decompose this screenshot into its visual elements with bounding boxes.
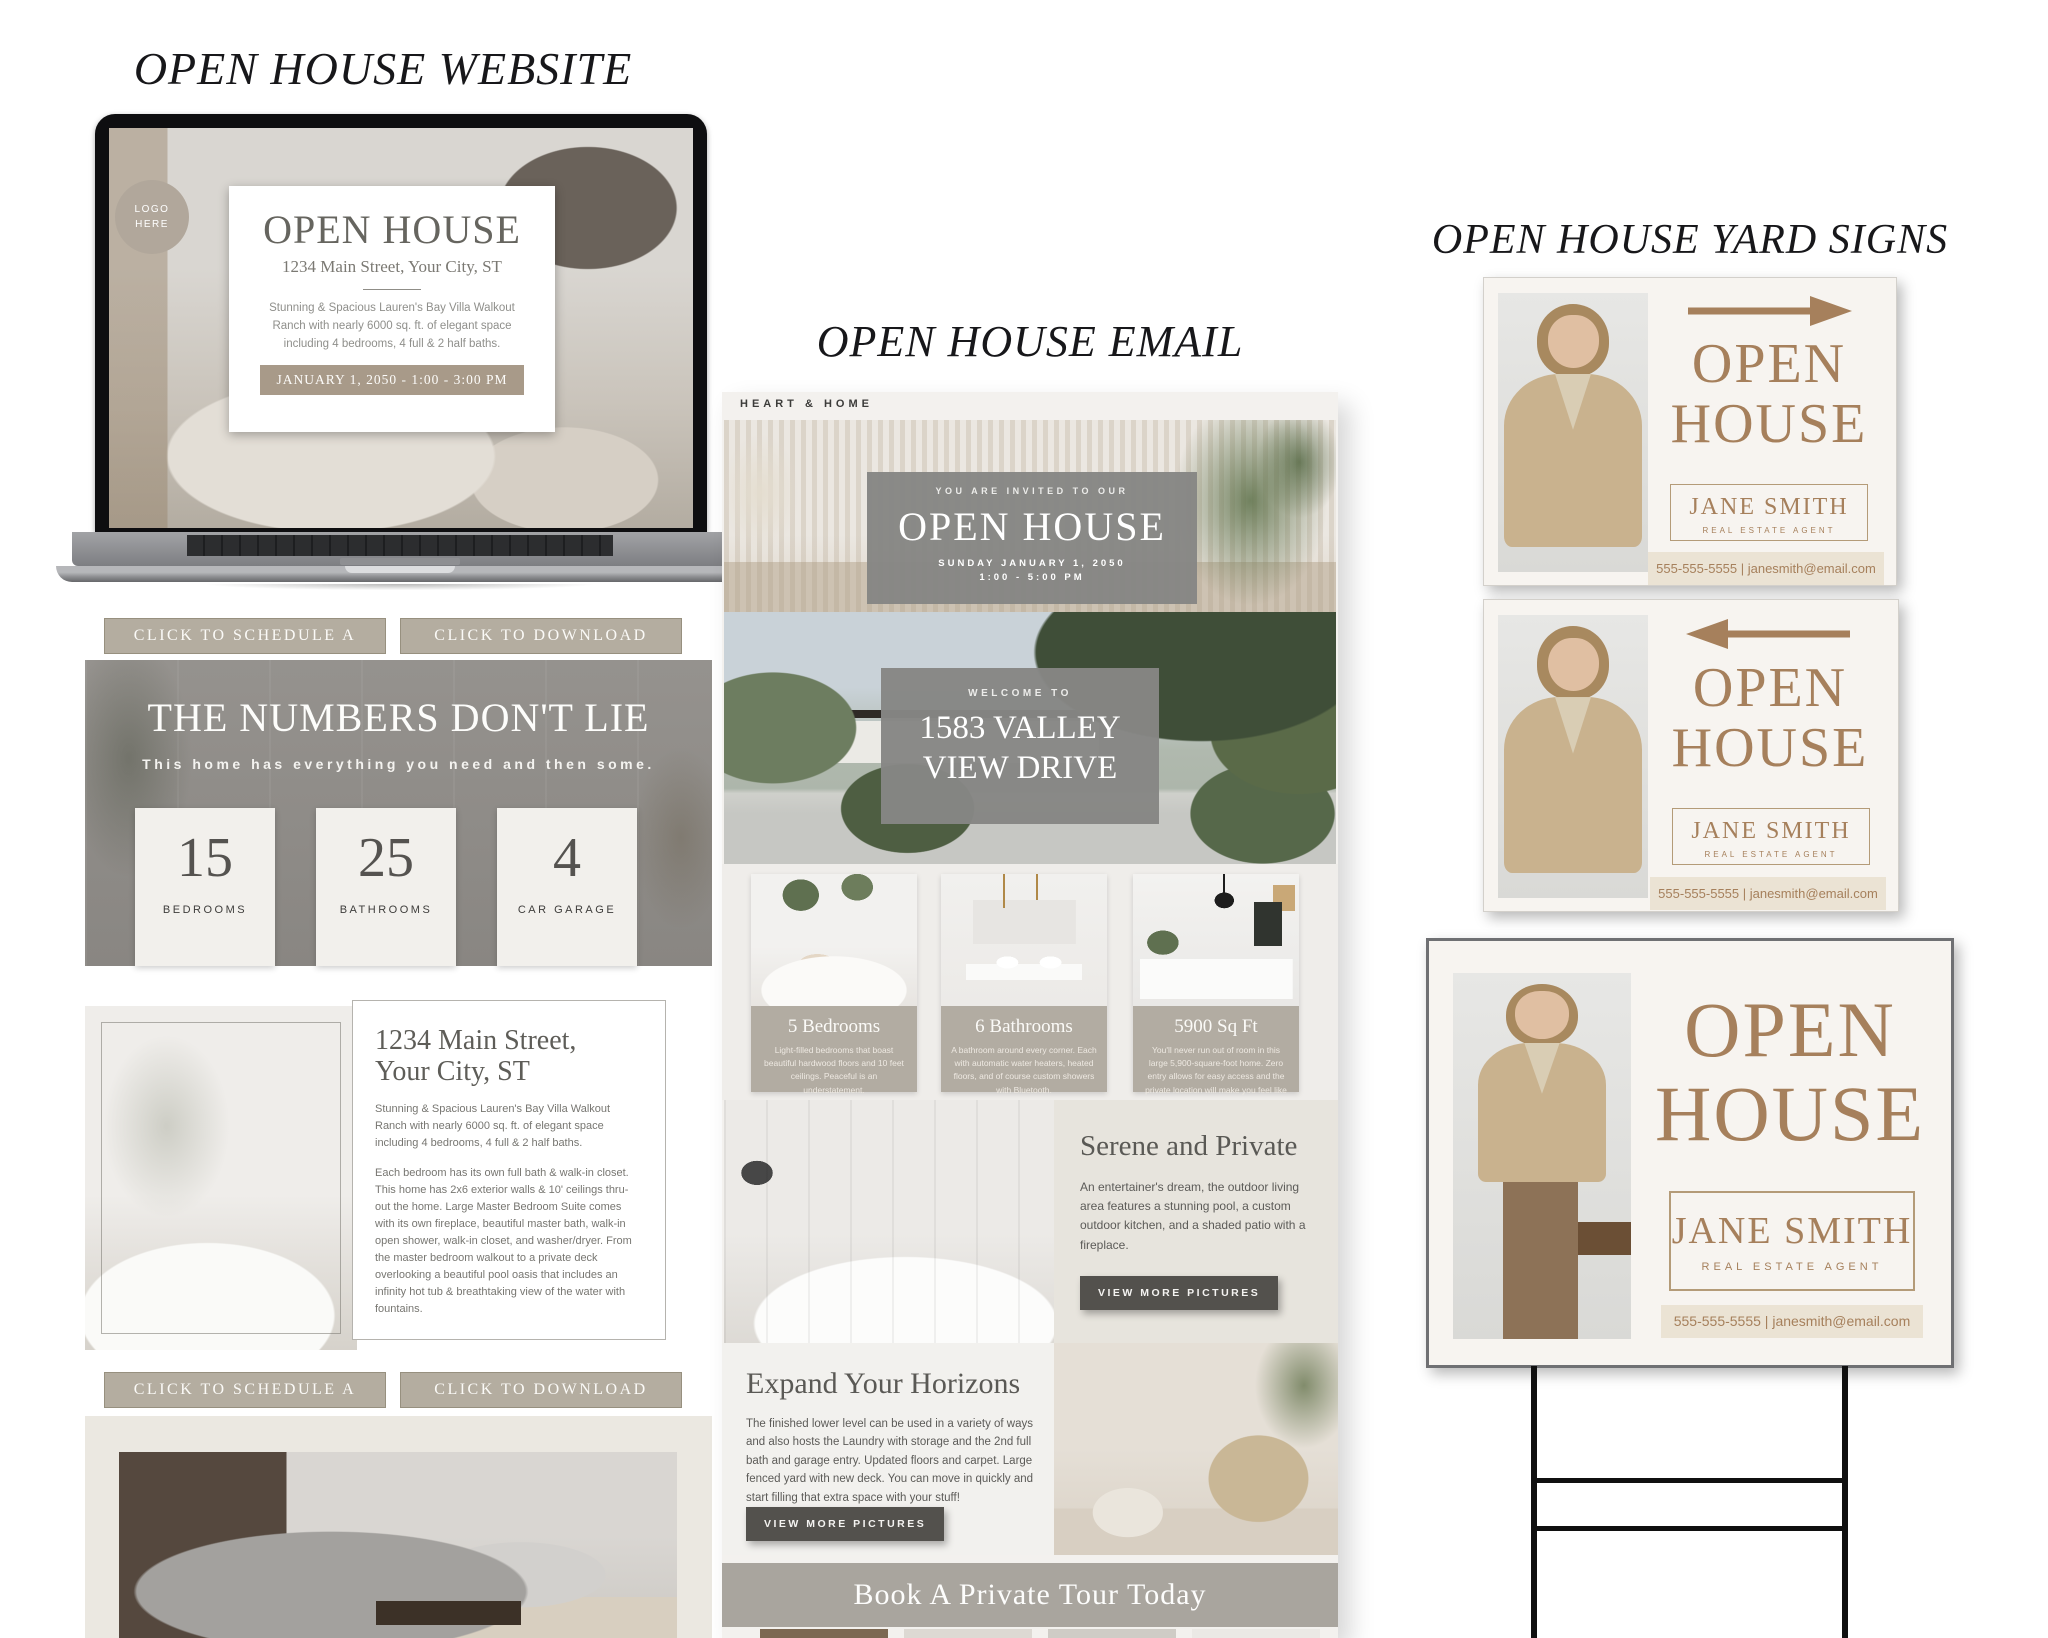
invite-hero-photo: YOU ARE INVITED TO OUR OPEN HOUSE SUNDAY… bbox=[724, 420, 1336, 612]
email-thumbnail bbox=[1048, 1629, 1176, 1638]
agent-face-shape bbox=[1548, 638, 1599, 692]
logo-badge: LOGO HERE bbox=[115, 180, 189, 254]
design-bundle-preview: OPEN HOUSE WEBSITE LOGO HERE OPEN HOUSE … bbox=[0, 0, 2048, 1638]
listing-heading: 1234 Main Street, Your City, ST bbox=[375, 1025, 643, 1088]
stat-value: 15 bbox=[135, 826, 275, 890]
arrow-left-icon bbox=[1684, 616, 1854, 652]
card-description: Stunning & Spacious Lauren's Bay Villa W… bbox=[229, 300, 555, 353]
stake-crossbar bbox=[1531, 1526, 1848, 1531]
laptop-shadow bbox=[120, 584, 680, 593]
bathroom-thumb-photo bbox=[941, 874, 1107, 1006]
gallery-section bbox=[85, 1416, 712, 1638]
serene-text: An entertainer's dream, the outdoor livi… bbox=[1080, 1178, 1316, 1255]
sign-open-text: OPEN bbox=[1654, 336, 1884, 392]
feature-text: A bathroom around every corner. Each wit… bbox=[941, 1044, 1107, 1097]
stake-leg bbox=[1842, 1366, 1848, 1638]
laptop-keyboard-deck bbox=[72, 532, 728, 566]
laptop-base bbox=[56, 566, 744, 582]
agent-name-box: JANE SMITH REAL ESTATE AGENT bbox=[1672, 808, 1870, 865]
agent-photo bbox=[1498, 293, 1648, 572]
bedroom-photo bbox=[85, 1006, 357, 1350]
laptop-notch bbox=[345, 566, 455, 573]
card-divider bbox=[363, 289, 421, 290]
stat-value: 25 bbox=[316, 826, 456, 890]
card-title: OPEN HOUSE bbox=[229, 206, 555, 253]
laptop-mockup: LOGO HERE OPEN HOUSE 1234 Main Street, Y… bbox=[95, 114, 707, 532]
living-room-photo: LOGO HERE OPEN HOUSE 1234 Main Street, Y… bbox=[109, 128, 693, 528]
book-tour-banner[interactable]: Book A Private Tour Today bbox=[722, 1563, 1338, 1627]
invite-date: SUNDAY JANUARY 1, 2050 bbox=[867, 558, 1197, 569]
stat-card-garage: 4 CAR GARAGE bbox=[497, 808, 637, 966]
yard-sign-large: OPEN HOUSE JANE SMITH REAL ESTATE AGENT … bbox=[1426, 938, 1954, 1368]
email-mockup: HEART & HOME YOU ARE INVITED TO OUR OPEN… bbox=[722, 392, 1338, 1638]
stake-leg bbox=[1531, 1366, 1537, 1638]
agent-name: JANE SMITH bbox=[1671, 494, 1867, 521]
website-section-title: OPEN HOUSE WEBSITE bbox=[100, 42, 666, 95]
stake-crossbar bbox=[1531, 1478, 1848, 1483]
yard-sign-arrow-left: OPEN HOUSE JANE SMITH REAL ESTATE AGENT … bbox=[1483, 599, 1899, 912]
welcome-line-2: VIEW DRIVE bbox=[881, 749, 1159, 789]
arrow-right-icon bbox=[1684, 293, 1854, 329]
feature-title: 6 Bathrooms bbox=[941, 1016, 1107, 1038]
download-flyer-button[interactable]: CLICK TO DOWNLOAD FLYER bbox=[400, 1372, 682, 1408]
agent-name-box: JANE SMITH REAL ESTATE AGENT bbox=[1669, 1191, 1915, 1291]
sign-house-text: HOUSE bbox=[1647, 1075, 1933, 1153]
stat-label: BATHROOMS bbox=[316, 904, 456, 916]
agent-photo bbox=[1498, 615, 1648, 898]
email-thumbnail bbox=[760, 1629, 888, 1638]
serene-heading: Serene and Private bbox=[1080, 1130, 1297, 1163]
contact-strip: 555-555-5555 | janesmith@email.com bbox=[1650, 877, 1886, 910]
agent-name-box: JANE SMITH REAL ESTATE AGENT bbox=[1670, 484, 1868, 541]
feature-card-sqft: 5900 Sq Ft You'll never run out of room … bbox=[1133, 874, 1299, 1092]
yard-signs-section-title: OPEN HOUSE YARD SIGNS bbox=[1402, 216, 1978, 264]
contact-strip: 555-555-5555 | janesmith@email.com bbox=[1648, 552, 1884, 585]
laptop-trackpad bbox=[340, 558, 460, 565]
feature-title: 5 Bedrooms bbox=[751, 1016, 917, 1038]
agent-role: REAL ESTATE AGENT bbox=[1671, 1261, 1913, 1273]
yard-sign-arrow-right: OPEN HOUSE JANE SMITH REAL ESTATE AGENT … bbox=[1483, 277, 1897, 586]
numbers-subtitle: This home has everything you need and th… bbox=[85, 756, 712, 772]
stat-label: CAR GARAGE bbox=[497, 904, 637, 916]
email-thumbnail bbox=[904, 1629, 1032, 1638]
sign-house-text: HOUSE bbox=[1654, 720, 1886, 776]
numbers-section: THE NUMBERS DON'T LIE This home has ever… bbox=[85, 660, 712, 966]
date-badge: JANUARY 1, 2050 - 1:00 - 3:00 PM bbox=[260, 365, 523, 395]
stat-card-bedrooms: 15 BEDROOMS bbox=[135, 808, 275, 966]
laptop-keyboard bbox=[187, 535, 613, 556]
photo-frame bbox=[101, 1022, 341, 1334]
expand-text: The finished lower level can be used in … bbox=[746, 1415, 1036, 1507]
invite-heading: OPEN HOUSE bbox=[867, 503, 1197, 550]
email-thumbnail bbox=[1192, 1629, 1320, 1638]
sign-open-text: OPEN bbox=[1654, 660, 1886, 716]
agent-name: JANE SMITH bbox=[1673, 818, 1869, 845]
welcome-eyebrow: WELCOME TO bbox=[881, 688, 1159, 699]
serene-panel: Serene and Private An entertainer's drea… bbox=[1054, 1100, 1338, 1343]
invite-eyebrow: YOU ARE INVITED TO OUR bbox=[867, 486, 1197, 496]
agent-face-shape bbox=[1515, 991, 1568, 1039]
agent-photo-full bbox=[1453, 973, 1631, 1339]
brand-label: HEART & HOME bbox=[740, 398, 873, 410]
view-more-pictures-button[interactable]: VIEW MORE PICTURES bbox=[746, 1507, 944, 1541]
coffee-table-shape bbox=[376, 1601, 521, 1625]
agent-pants-shape bbox=[1503, 1174, 1578, 1339]
invite-overlay: YOU ARE INVITED TO OUR OPEN HOUSE SUNDAY… bbox=[867, 472, 1197, 604]
agent-name: JANE SMITH bbox=[1671, 1209, 1913, 1253]
download-flyer-button[interactable]: CLICK TO DOWNLOAD FLYER bbox=[400, 618, 682, 654]
master-bedroom-photo bbox=[724, 1100, 1054, 1343]
welcome-overlay: WELCOME TO 1583 VALLEY VIEW DRIVE bbox=[881, 668, 1159, 824]
kitchen-thumb-photo bbox=[1133, 874, 1299, 1006]
house-exterior-photo: WELCOME TO 1583 VALLEY VIEW DRIVE bbox=[724, 612, 1336, 864]
feature-text: Light-filled bedrooms that boast beautif… bbox=[751, 1044, 917, 1097]
sign-house-text: HOUSE bbox=[1654, 396, 1884, 452]
agent-role: REAL ESTATE AGENT bbox=[1673, 850, 1869, 859]
agent-face-shape bbox=[1548, 315, 1599, 368]
bedroom-thumb-photo bbox=[751, 874, 917, 1006]
expand-heading: Expand Your Horizons bbox=[746, 1367, 1020, 1401]
lounge-photo bbox=[1054, 1343, 1338, 1555]
contact-strip: 555-555-5555 | janesmith@email.com bbox=[1661, 1305, 1923, 1338]
sectional-sofa-photo bbox=[119, 1452, 677, 1638]
view-more-pictures-button[interactable]: VIEW MORE PICTURES bbox=[1080, 1276, 1278, 1310]
email-section-title: OPEN HOUSE EMAIL bbox=[765, 316, 1295, 367]
welcome-line-1: 1583 VALLEY bbox=[881, 709, 1159, 749]
listing-paragraph-1: Stunning & Spacious Lauren's Bay Villa W… bbox=[375, 1101, 643, 1152]
stat-label: BEDROOMS bbox=[135, 904, 275, 916]
listing-paragraph-2: Each bedroom has its own full bath & wal… bbox=[375, 1165, 643, 1318]
feature-card-bedrooms: 5 Bedrooms Light-filled bedrooms that bo… bbox=[751, 874, 917, 1092]
numbers-title: THE NUMBERS DON'T LIE bbox=[85, 694, 712, 741]
agent-role: REAL ESTATE AGENT bbox=[1671, 526, 1867, 535]
listing-card: 1234 Main Street, Your City, ST Stunning… bbox=[352, 1000, 666, 1340]
expand-panel: Expand Your Horizons The finished lower … bbox=[722, 1343, 1054, 1555]
feature-card-bathrooms: 6 Bathrooms A bathroom around every corn… bbox=[941, 874, 1107, 1092]
card-address: 1234 Main Street, Your City, ST bbox=[229, 257, 555, 277]
stat-value: 4 bbox=[497, 826, 637, 890]
schedule-showing-button[interactable]: CLICK TO SCHEDULE A PRIVATE SHOWING bbox=[104, 618, 386, 654]
sign-open-text: OPEN bbox=[1647, 991, 1933, 1069]
stat-card-bathrooms: 25 BATHROOMS bbox=[316, 808, 456, 966]
schedule-showing-button[interactable]: CLICK TO SCHEDULE A PRIVATE SHOWING bbox=[104, 1372, 386, 1408]
invite-time: 1:00 - 5:00 PM bbox=[867, 572, 1197, 583]
feature-title: 5900 Sq Ft bbox=[1133, 1016, 1299, 1038]
open-house-card: OPEN HOUSE 1234 Main Street, Your City, … bbox=[229, 186, 555, 432]
